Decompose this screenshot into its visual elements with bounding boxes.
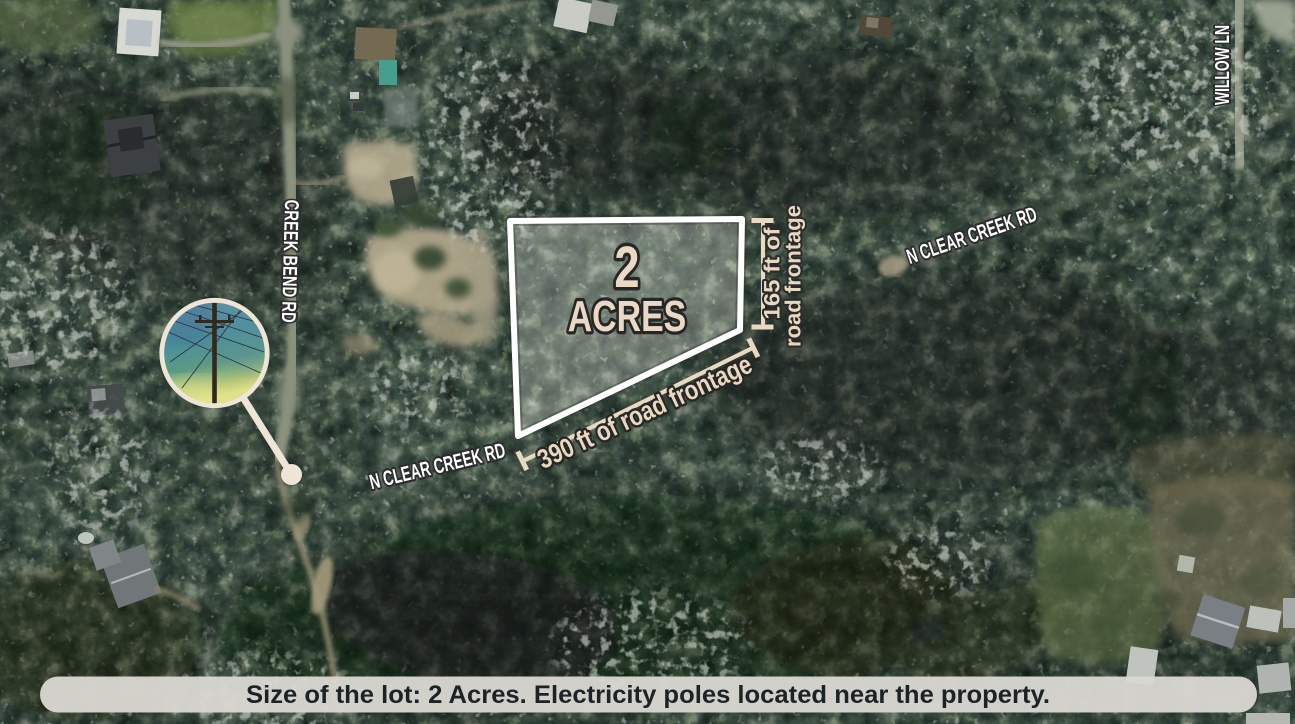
svg-text:Size of the lot: 2 Acres. Elec: Size of the lot: 2 Acres. Electricity po… xyxy=(246,681,1050,709)
svg-text:road frontage: road frontage xyxy=(781,205,806,347)
svg-text:2: 2 xyxy=(614,236,639,301)
svg-text:ACRES: ACRES xyxy=(568,292,687,341)
svg-text:CREEK BEND RD: CREEK BEND RD xyxy=(277,199,302,323)
svg-text:WILLOW LN: WILLOW LN xyxy=(1212,25,1234,105)
